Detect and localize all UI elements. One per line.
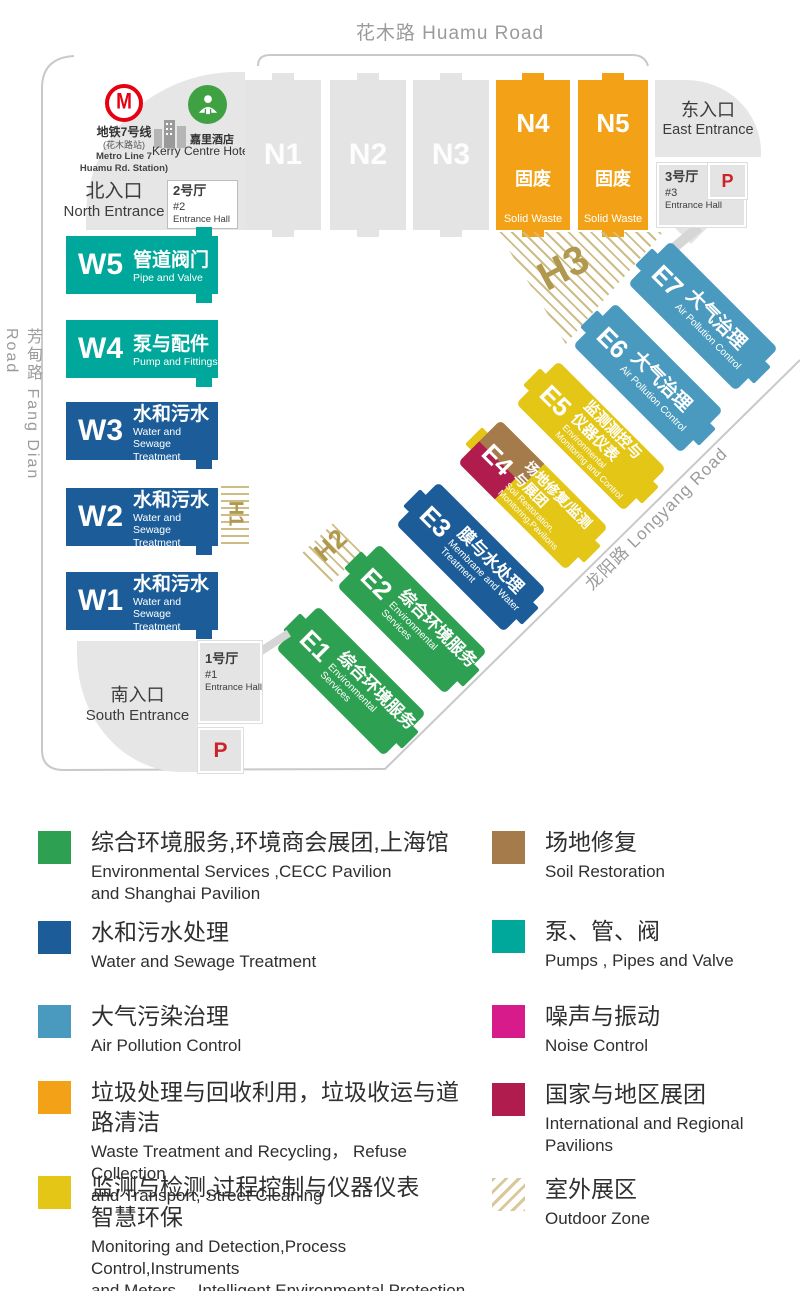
hall-e5-id: E5 [533, 378, 577, 422]
road-label-fangdian: 芳甸路 Fang Dian Road [2, 328, 44, 508]
hall-n5-cn: 固废 [595, 165, 631, 191]
hall-w3-cn: 水和污水 [133, 399, 218, 426]
kerry-hotel-icon [188, 85, 227, 124]
legend-cn: 室外展区 [545, 1175, 650, 1205]
legend-swatch-brown [492, 831, 525, 864]
hall-w1-cn: 水和污水 [133, 569, 218, 596]
hall-n3: N3 [413, 80, 489, 230]
hall-w3-en: Water and Sewage Treatment [133, 426, 218, 462]
legend-en: Pumps , Pipes and Valve [545, 950, 734, 972]
hall-w3: W3 水和污水Water and Sewage Treatment [66, 402, 218, 460]
legend-swatch-crimson [492, 1083, 525, 1116]
hall-w2-en: Water and Sewage Treatment [133, 512, 218, 548]
east-entrance-cn: 东入口 [655, 96, 761, 122]
metro-logo-icon: M [105, 84, 143, 122]
east-entrance-area: 东入口 East Entrance [655, 80, 761, 157]
hall-e3-id: E3 [413, 499, 457, 543]
north-entrance-en: North Entrance [50, 203, 178, 220]
legend-cn: 场地修复 [545, 828, 665, 858]
legend-en: Monitoring and Detection,Process Control… [91, 1236, 478, 1291]
hall-w1-en: Water and Sewage Treatment [133, 596, 218, 632]
entrance-hall-1: 1号厅 #1 Entrance Hall [198, 641, 262, 723]
legend-item-air-pollution: 大气污染治理Air Pollution Control [38, 1002, 468, 1057]
legend-cn: 监测与检测,过程控制与仪器仪表 智慧环保 [91, 1173, 478, 1233]
entrance-hall-2: 2号厅 #2 Entrance Hall [167, 180, 238, 229]
hall-w2-cn: 水和污水 [133, 485, 218, 512]
legend-en: Outdoor Zone [545, 1208, 650, 1230]
legend-swatch-orange [38, 1081, 71, 1114]
legend-en: International and Regional Pavilions [545, 1113, 800, 1157]
legend-swatch-hatch [492, 1178, 525, 1211]
legend-item-international-pavilions: 国家与地区展团International and Regional Pavili… [492, 1080, 800, 1157]
south-entrance-en: South Entrance [77, 707, 198, 724]
south-entrance-cn: 南入口 [77, 681, 198, 707]
legend-item-monitoring: 监测与检测,过程控制与仪器仪表 智慧环保Monitoring and Detec… [38, 1173, 478, 1291]
parking-south-letter: P [213, 739, 227, 763]
hall-n3-id: N3 [432, 138, 470, 172]
legend-cn: 垃圾处理与回收利用，垃圾收运与道路清洁 [91, 1078, 478, 1138]
hall1-num: #1 [205, 668, 255, 682]
hall-w1-id: W1 [78, 584, 123, 618]
hall-n5: N5 固废 Solid Waste [578, 80, 648, 230]
hall-n1: N1 [245, 80, 321, 230]
hall-w3-id: W3 [78, 414, 123, 448]
hall-n4-en: Solid Waste [504, 213, 562, 225]
hall-w2: W2 水和污水Water and Sewage Treatment [66, 488, 218, 546]
hall-w5: W5 管道阀门Pipe and Valve [66, 236, 218, 294]
legend-cn: 大气污染治理 [91, 1002, 241, 1032]
legend-swatch-airblue [38, 1005, 71, 1038]
legend-item-environmental-services: 综合环境服务,环境商会展团,上海馆Environmental Services … [38, 828, 468, 905]
hall-n4-id: N4 [516, 108, 549, 139]
hall-e6-id: E6 [590, 320, 634, 364]
hall-e7-id: E7 [645, 258, 689, 302]
hall-w4-en: Pump and Fittings [133, 356, 218, 368]
hall-w5-en: Pipe and Valve [133, 272, 209, 284]
legend-cn: 泵、管、阀 [545, 917, 734, 947]
hotel-label-en: Kerry Centre Hotel [152, 144, 251, 158]
hall2-en: Entrance Hall [173, 214, 232, 226]
hall-w4-cn: 泵与配件 [133, 329, 218, 356]
north-entrance-cn: 北入口 [50, 176, 178, 203]
legend-cn: 噪声与振动 [545, 1002, 660, 1032]
legend-en: Air Pollution Control [91, 1035, 241, 1057]
hall1-cn: 1号厅 [205, 651, 255, 668]
hall-w4: W4 泵与配件Pump and Fittings [66, 320, 218, 378]
legend-cn: 水和污水处理 [91, 918, 316, 948]
legend-item-soil-restoration: 场地修复Soil Restoration [492, 828, 792, 883]
legend-swatch-magenta [492, 1005, 525, 1038]
hall-e1-id: E1 [293, 623, 337, 667]
legend-cn: 国家与地区展团 [545, 1080, 800, 1110]
legend-swatch-yellow [38, 1176, 71, 1209]
hall-n4: N4 固废 Solid Waste [496, 80, 570, 230]
legend-en: Environmental Services ,CECC Pavilion an… [91, 861, 449, 905]
hall-n1-id: N1 [264, 138, 302, 172]
legend-en: Water and Sewage Treatment [91, 951, 316, 973]
outdoor-zone-h1-label: H1 [223, 501, 246, 527]
legend-item-noise-control: 噪声与振动Noise Control [492, 1002, 792, 1057]
hall-w2-id: W2 [78, 500, 123, 534]
parking-south: P [198, 728, 243, 773]
hall-n5-en: Solid Waste [584, 213, 642, 225]
legend-en: Noise Control [545, 1035, 660, 1057]
legend-swatch-blue [38, 921, 71, 954]
legend-item-water-sewage: 水和污水处理Water and Sewage Treatment [38, 918, 468, 973]
metro-station-en: Huamu Rd. Station) [62, 163, 186, 175]
legend-item-pumps-pipes: 泵、管、阀Pumps , Pipes and Valve [492, 917, 792, 972]
parking-east: P [708, 163, 747, 199]
south-entrance-area: 南入口 South Entrance [77, 641, 198, 772]
road-label-huamu: 花木路 Huamu Road [180, 18, 720, 45]
legend-item-outdoor-zone: 室外展区Outdoor Zone [492, 1175, 792, 1230]
hall-n5-id: N5 [596, 108, 629, 139]
hall3-en: Entrance Hall [665, 200, 738, 212]
hall-w1: W1 水和污水Water and Sewage Treatment [66, 572, 218, 630]
hall-n2: N2 [330, 80, 406, 230]
hall1-en: Entrance Hall [205, 682, 255, 694]
hall2-cn: 2号厅 [173, 183, 232, 200]
expo-floorplan: 花木路 Huamu Road 芳甸路 Fang Dian Road 龙阳路 Lo… [0, 0, 800, 1291]
north-entrance-label: 北入口 North Entrance [50, 176, 178, 220]
legend-swatch-teal [492, 920, 525, 953]
hall-w5-id: W5 [78, 248, 123, 282]
hall-w5-cn: 管道阀门 [133, 245, 209, 272]
hall-n4-cn: 固废 [515, 165, 551, 191]
hall2-num: #2 [173, 200, 232, 214]
hall-e2-id: E2 [354, 561, 398, 605]
east-entrance-en: East Entrance [655, 122, 761, 138]
hall-w4-id: W4 [78, 332, 123, 366]
legend-cn: 综合环境服务,环境商会展团,上海馆 [91, 828, 449, 858]
metro-logo-letter: M [116, 90, 132, 115]
parking-east-letter: P [721, 171, 733, 192]
legend-en: Soil Restoration [545, 861, 665, 883]
hall-n2-id: N2 [349, 138, 387, 172]
legend-swatch-green [38, 831, 71, 864]
